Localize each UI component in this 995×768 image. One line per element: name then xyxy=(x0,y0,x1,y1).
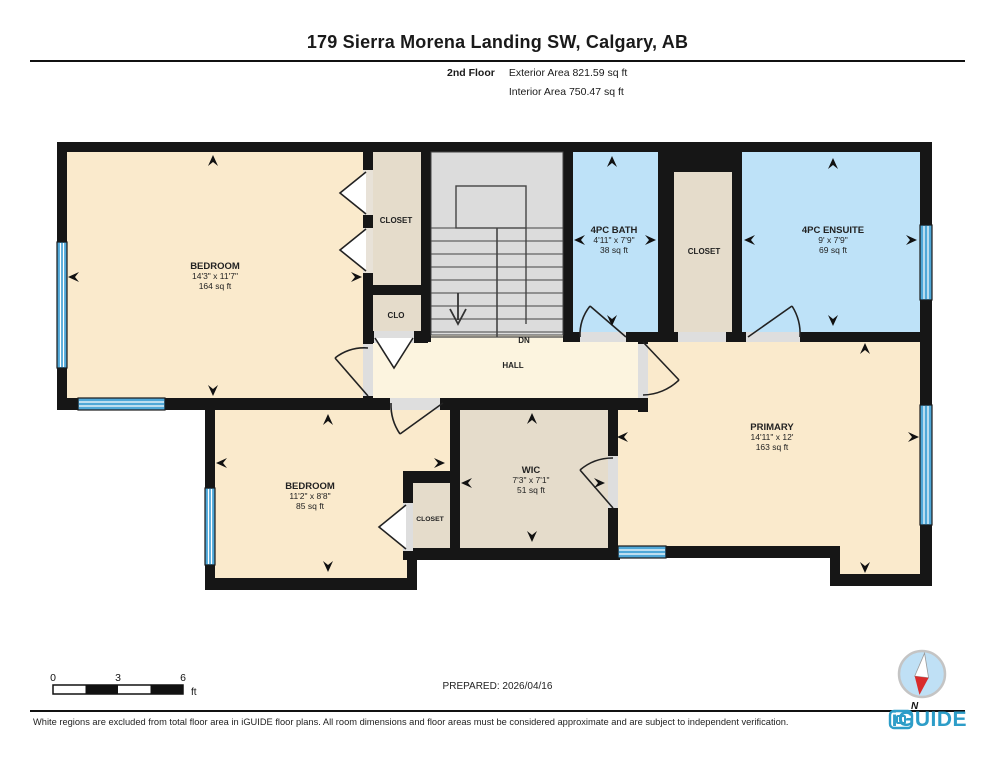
prepared-date: PREPARED: 2026/04/16 xyxy=(0,681,995,692)
room-label-hall: HALL xyxy=(502,361,523,370)
footer-divider xyxy=(30,710,965,712)
window xyxy=(920,405,932,525)
staircase xyxy=(431,152,563,337)
room-label-closet-b2: CLOSET xyxy=(416,516,444,523)
floorplan-page: 179 Sierra Morena Landing SW, Calgary, A… xyxy=(0,0,995,768)
iguide-logo: iGUIDE xyxy=(888,708,967,732)
room-label-bath: 4PC BATH 4'11" x 7'9" 38 sq ft xyxy=(591,226,638,255)
room-label-bedroom-2: BEDROOM 11'2" x 8'8" 85 sq ft xyxy=(285,482,335,511)
room-label-clo: CLO xyxy=(388,311,405,320)
label-stairs-dn: DN xyxy=(518,336,530,345)
window xyxy=(920,225,932,300)
floor-plan-graphic: 0 3 6 ft N xyxy=(0,0,995,768)
room-label-ensuite: 4PC ENSUITE 9' x 7'9" 69 sq ft xyxy=(802,226,864,255)
window xyxy=(205,488,215,565)
window xyxy=(78,398,165,410)
room-label-bedroom-1: BEDROOM 14'3" x 11'7" 164 sq ft xyxy=(190,262,240,291)
room-label-wic: WIC 7'3" x 7'1" 51 sq ft xyxy=(512,466,549,495)
disclaimer-text: White regions are excluded from total fl… xyxy=(33,717,823,727)
window xyxy=(57,242,67,368)
room-label-closet-mid: CLOSET xyxy=(688,247,720,256)
room-label-closet-top: CLOSET xyxy=(380,216,412,225)
iguide-logo-icon xyxy=(888,708,914,730)
room-label-primary: PRIMARY 14'11" x 12' 163 sq ft xyxy=(750,423,793,452)
window xyxy=(618,546,666,558)
